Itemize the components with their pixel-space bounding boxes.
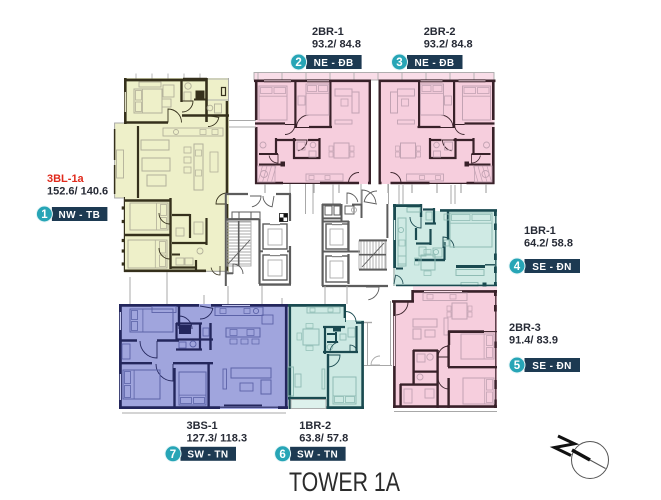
svg-text:127.3/ 118.3: 127.3/ 118.3 (187, 433, 248, 445)
svg-text:2BR-1: 2BR-1 (312, 26, 344, 38)
svg-text:SE - ĐN: SE - ĐN (532, 262, 571, 273)
svg-text:SW - TN: SW - TN (187, 450, 228, 461)
svg-text:93.2/ 84.8: 93.2/ 84.8 (424, 39, 473, 51)
svg-text:1BR-1: 1BR-1 (524, 225, 556, 237)
svg-text:2: 2 (295, 57, 301, 69)
svg-text:4: 4 (514, 261, 521, 273)
svg-text:NE - ĐB: NE - ĐB (414, 58, 454, 69)
svg-text:NE - ĐB: NE - ĐB (314, 58, 354, 69)
svg-text:2BR-3: 2BR-3 (509, 322, 541, 334)
svg-text:SW - TN: SW - TN (297, 450, 338, 461)
svg-text:91.4/ 83.9: 91.4/ 83.9 (509, 335, 558, 347)
svg-text:64.2/ 58.8: 64.2/ 58.8 (524, 238, 573, 250)
svg-text:2BR-2: 2BR-2 (424, 26, 456, 38)
svg-text:93.2/ 84.8: 93.2/ 84.8 (312, 39, 361, 51)
svg-text:NW - TB: NW - TB (59, 210, 101, 221)
svg-text:1BR-2: 1BR-2 (299, 420, 331, 432)
svg-text:3BS-1: 3BS-1 (187, 420, 218, 432)
svg-text:6: 6 (279, 449, 285, 461)
svg-text:5: 5 (514, 360, 521, 372)
svg-text:TOWER 1A: TOWER 1A (289, 467, 400, 497)
svg-text:SE - ĐN: SE - ĐN (532, 361, 571, 372)
svg-text:152.6/ 140.6: 152.6/ 140.6 (47, 186, 108, 198)
svg-text:63.8/ 57.8: 63.8/ 57.8 (299, 433, 348, 445)
svg-text:3: 3 (396, 57, 402, 69)
svg-text:1: 1 (41, 209, 48, 221)
svg-text:3BL-1a: 3BL-1a (47, 173, 85, 185)
svg-text:7: 7 (170, 449, 176, 461)
